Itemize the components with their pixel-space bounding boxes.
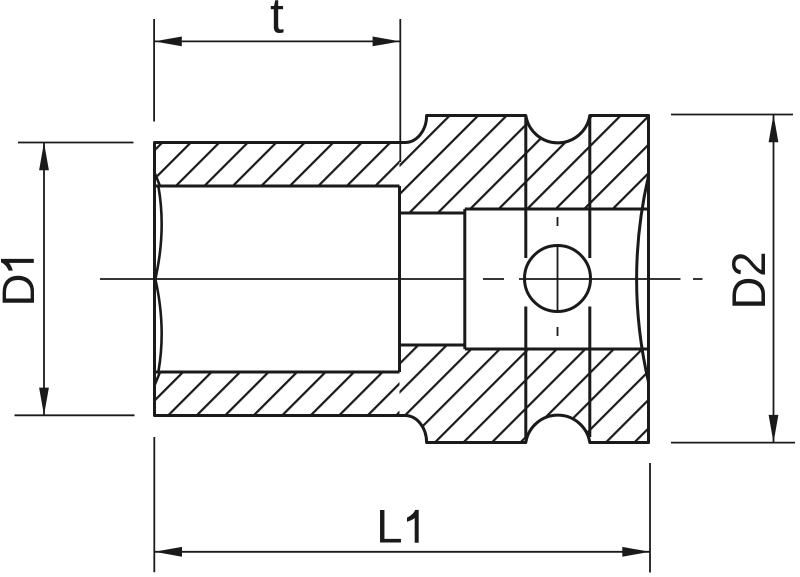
svg-text:D2: D2 [723,252,776,310]
svg-text:D: D [0,274,44,307]
svg-text:t: t [270,0,284,44]
svg-text:L: L [376,501,402,554]
